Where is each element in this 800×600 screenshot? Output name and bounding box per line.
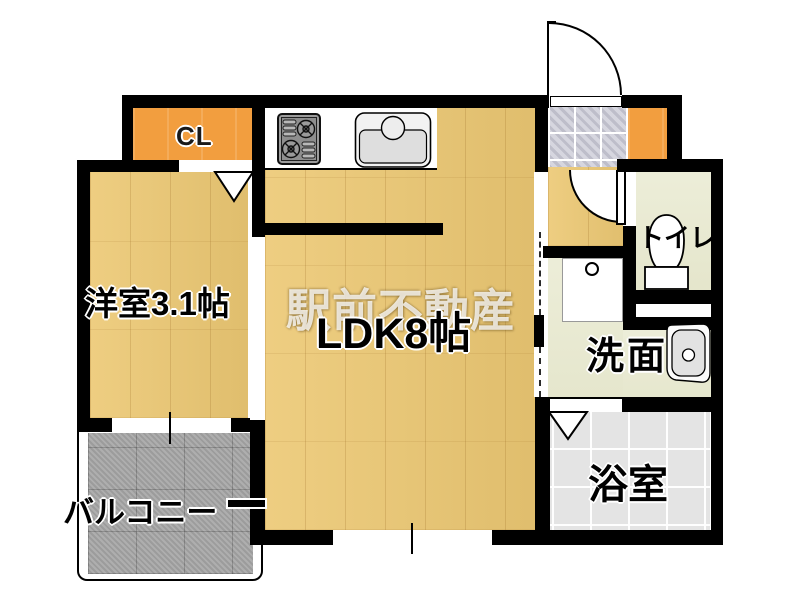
- washroom-sliding-door-line2: [539, 347, 541, 397]
- gas-stove-icon: [277, 113, 321, 165]
- entrance-door-swing-arc: [549, 22, 622, 95]
- toilet-label: トイレ: [638, 218, 716, 255]
- shoe-cabinet: [628, 107, 667, 159]
- entrance-door-leaf: [547, 21, 549, 96]
- washbasin-icon: [664, 322, 712, 385]
- wall-closet-left: [122, 95, 133, 160]
- entrance-threshold: [550, 96, 622, 107]
- wall-top: [122, 95, 549, 108]
- floor-plan: 駅前不動産 CL 洋室3.1帖 LDK8帖 トイレ 洗面 浴室 バルコニー: [0, 0, 800, 600]
- wall-entrance-right: [667, 95, 682, 160]
- ldk-label: LDK8帖: [316, 299, 471, 361]
- wall-toilet-bottom: [623, 290, 723, 304]
- wall-ldk-entrance: [535, 95, 548, 172]
- bath-door-triangle-icon: [547, 410, 589, 441]
- bathroom-label: 浴室: [588, 452, 668, 510]
- balcony-label: バルコニー: [63, 487, 217, 532]
- wall-right: [711, 159, 723, 545]
- western-window: [112, 418, 231, 432]
- ldk-window-tick: [411, 523, 413, 554]
- closet-label: CL: [176, 121, 213, 152]
- kitchen-sink-icon: [354, 111, 433, 169]
- wall-toilet-top: [617, 159, 723, 172]
- wall-center-vertical: [252, 95, 265, 237]
- balcony-label-dash: [228, 500, 265, 507]
- wall-balcony-ldk: [250, 420, 265, 545]
- toilet-washroom-slot: [636, 304, 711, 317]
- wall-western-top: [77, 160, 179, 172]
- western-window-tick: [169, 412, 171, 444]
- western-ldk-opening: [250, 237, 265, 420]
- washing-machine-drain-icon: [585, 262, 599, 276]
- washroom-strip-stub: [534, 315, 544, 347]
- ldk-hallway-opening: [534, 172, 548, 246]
- western-room-label: 洋室3.1帖: [85, 277, 230, 325]
- entrance-tile-floor: [548, 107, 628, 167]
- wall-washroom-top: [543, 246, 623, 258]
- wall-kitchen-stub: [252, 223, 443, 235]
- toilet-door-leaf: [616, 170, 626, 225]
- entrance-door-leaf-tip: [547, 21, 556, 23]
- washroom-sliding-door-line: [539, 232, 541, 315]
- washroom-label: 洗面: [586, 325, 668, 380]
- closet-door-triangle-icon: [213, 170, 255, 203]
